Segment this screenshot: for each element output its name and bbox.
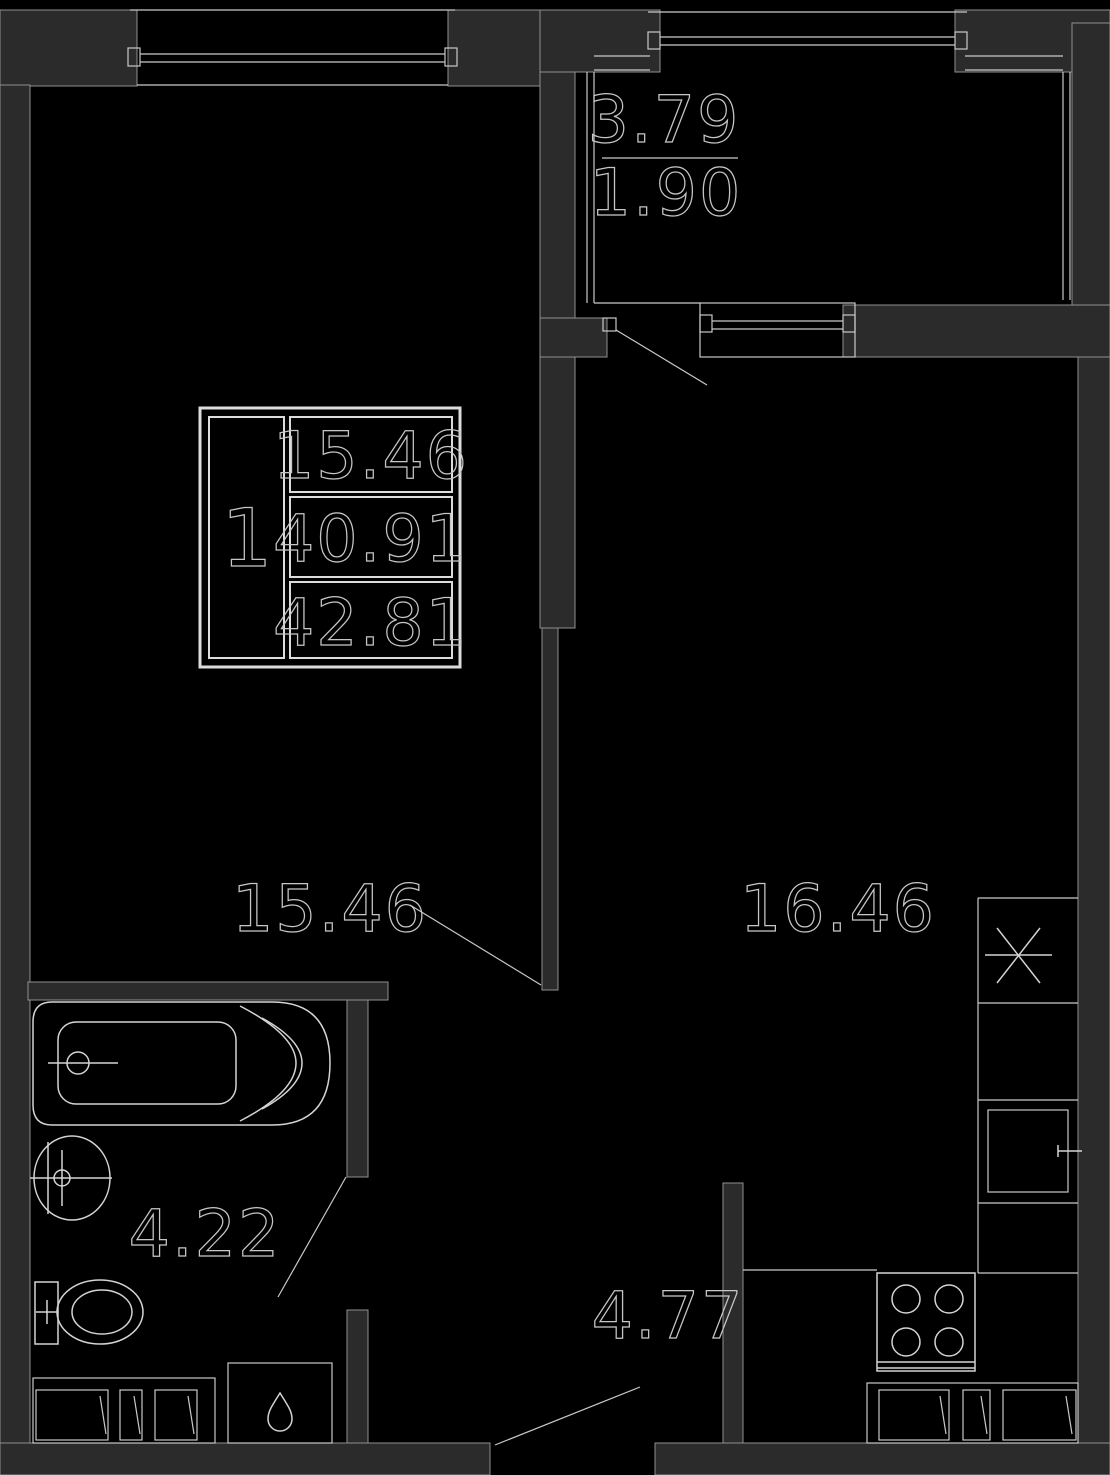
north-wall-right-pier [448, 10, 540, 86]
toilet [35, 1280, 143, 1344]
stove [877, 1273, 975, 1371]
washbasin [30, 1136, 112, 1220]
balcony-area-label: 3.79 [588, 83, 741, 158]
balcony-reduced-area-label: 1.90 [590, 156, 743, 231]
hallway-area-label: 4.77 [592, 1279, 745, 1354]
legend-rooms-count: 1 [222, 492, 273, 585]
burner [935, 1328, 963, 1356]
burner [892, 1328, 920, 1356]
kitchen-balcony-window [700, 303, 855, 357]
floor-plan-canvas: 1 15.46 40.91 42.81 3.79 1.90 15.46 16.4… [0, 0, 1110, 1475]
bathroom-area-label: 4.22 [129, 1197, 282, 1272]
balcony-door-jamb-block [540, 318, 607, 357]
legend-total-area: 40.91 [273, 502, 469, 577]
bathtub [33, 1002, 330, 1125]
kitchen-area-label: 16.46 [740, 872, 936, 947]
sink-symbol-icon [985, 928, 1052, 983]
burner [935, 1285, 963, 1313]
kitchen-vent-ducts [867, 1383, 1078, 1443]
legend-table: 1 15.46 40.91 42.81 [200, 408, 469, 667]
bathroom-door-leaf [278, 1177, 346, 1297]
top-junction-block [540, 10, 660, 72]
balcony-east-backing-wall [1072, 23, 1110, 305]
balcony-door [603, 318, 707, 385]
burner [892, 1285, 920, 1313]
bathroom-vent-ducts [33, 1378, 215, 1443]
kitchen-north-wall [843, 305, 1110, 357]
living-room-window [128, 10, 457, 85]
floor-plan: 1 15.46 40.91 42.81 3.79 1.90 15.46 16.4… [0, 0, 1110, 1475]
north-wall-left-pier [0, 10, 137, 86]
living-room-area-label: 15.46 [232, 872, 428, 947]
bottom-wall-right [655, 1443, 1110, 1475]
entrance-door-leaf [495, 1387, 640, 1445]
kitchen-sink [988, 1110, 1082, 1192]
water-drop-icon [268, 1393, 292, 1431]
bathroom-top-wall [28, 982, 388, 1000]
washing-machine-place [228, 1363, 332, 1443]
legend-living-area: 15.46 [273, 419, 469, 494]
legend-total-area-with-balcony: 42.81 [273, 586, 469, 661]
kitchen-fixtures [743, 898, 1082, 1443]
balcony-glazing-east [1063, 72, 1070, 300]
right-exterior-wall [1078, 357, 1110, 1443]
left-exterior-wall [0, 85, 30, 1443]
bottom-wall-left [0, 1443, 490, 1475]
room-labels: 3.79 1.90 15.46 16.46 4.22 4.77 [129, 83, 936, 1354]
bathroom-east-wall-lower [347, 1310, 368, 1443]
central-wall-thin [542, 628, 558, 990]
living-room-door-leaf [410, 905, 541, 985]
bathroom-east-wall-upper [347, 1000, 368, 1177]
